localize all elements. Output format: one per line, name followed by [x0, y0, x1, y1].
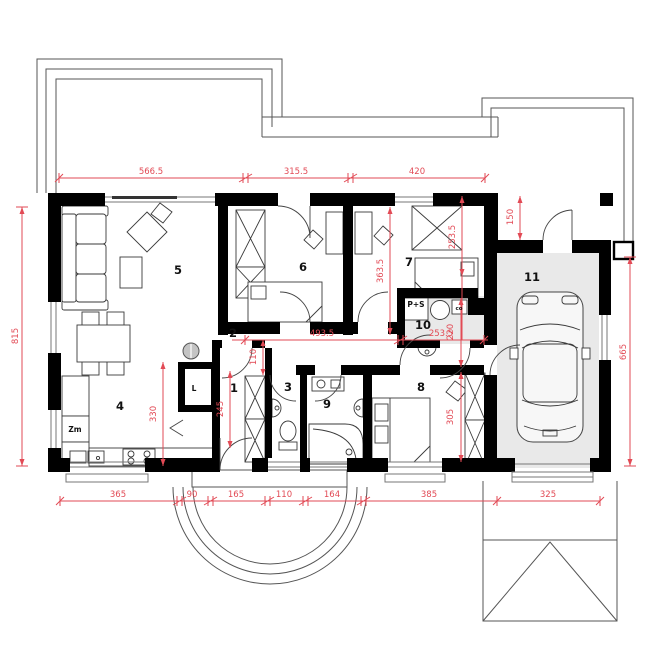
wardrobe-room8	[465, 373, 485, 466]
dim-top-3: 420	[409, 167, 425, 177]
room-label-10: 10	[415, 318, 431, 332]
dim-bottom-3: 165	[228, 490, 244, 500]
sliding-door-panel	[112, 196, 177, 199]
chair-room8	[446, 381, 467, 401]
room-label-9: 9	[323, 397, 331, 411]
room-label-11: 11	[524, 270, 540, 284]
dim-bottom-4: 110	[276, 490, 292, 500]
dim-253-room7: 253.5	[448, 225, 458, 249]
dim-right: 665	[619, 344, 629, 360]
dim-corridor-1: 493.5	[310, 329, 334, 339]
dim-bottom-7: 325	[540, 490, 556, 500]
washer-dryer-label: P+S	[407, 300, 424, 309]
room-label-3: 3	[284, 380, 292, 394]
room-label-8: 8	[417, 380, 425, 394]
folding-door-icon	[170, 420, 183, 436]
floor-plan-svg: Zm	[0, 0, 660, 660]
entrance-porch	[173, 470, 367, 584]
room-label-5: 5	[174, 263, 182, 277]
dim-top-2: 315.5	[284, 167, 308, 177]
bed-room8	[372, 398, 430, 462]
dishwasher-label: Zm	[68, 425, 81, 434]
room-label-4: 4	[116, 399, 124, 413]
dim-305: 305	[446, 409, 456, 425]
terrace-railing-bar	[262, 117, 498, 137]
dim-363: 363.5	[376, 259, 386, 283]
bed-room6	[248, 282, 322, 322]
dim-bottom-2: 90	[187, 490, 198, 500]
dim-150: 150	[506, 209, 516, 225]
dim-bottom-6: 385	[421, 490, 437, 500]
washbasin-bath	[354, 399, 363, 417]
room-label-1: 1	[230, 381, 238, 395]
sofa	[62, 206, 108, 310]
toilet-wc	[279, 421, 297, 450]
duct-block	[468, 298, 484, 315]
coffee-table	[120, 257, 142, 288]
terrace-top-right	[482, 98, 633, 243]
dim-bottom-1: 365	[110, 490, 126, 500]
dim-245: 245	[216, 401, 226, 417]
boiler-label: co	[455, 306, 462, 312]
driveway	[483, 481, 617, 621]
boiler	[431, 301, 450, 320]
dim-110: 110	[249, 349, 259, 365]
washbasin-utility	[418, 347, 436, 356]
dim-top-1: 566.5	[139, 167, 163, 177]
room-label-2: 2	[229, 326, 237, 340]
dim-left: 815	[11, 328, 21, 344]
room-label-7: 7	[405, 255, 413, 269]
wardrobe-hall	[245, 376, 265, 462]
dim-220: 220	[446, 324, 456, 340]
armchair	[127, 203, 172, 252]
dim-330: 330	[149, 406, 159, 422]
dim-bottom-5: 164	[324, 490, 340, 500]
room-label-6: 6	[299, 260, 307, 274]
desk-room7	[355, 212, 393, 254]
floor-plan: Zm	[0, 0, 660, 660]
washbasin-wc	[272, 399, 281, 417]
dining-table	[77, 312, 130, 375]
car	[510, 292, 590, 442]
fridge-label: L	[192, 384, 197, 393]
chimney	[614, 242, 633, 259]
